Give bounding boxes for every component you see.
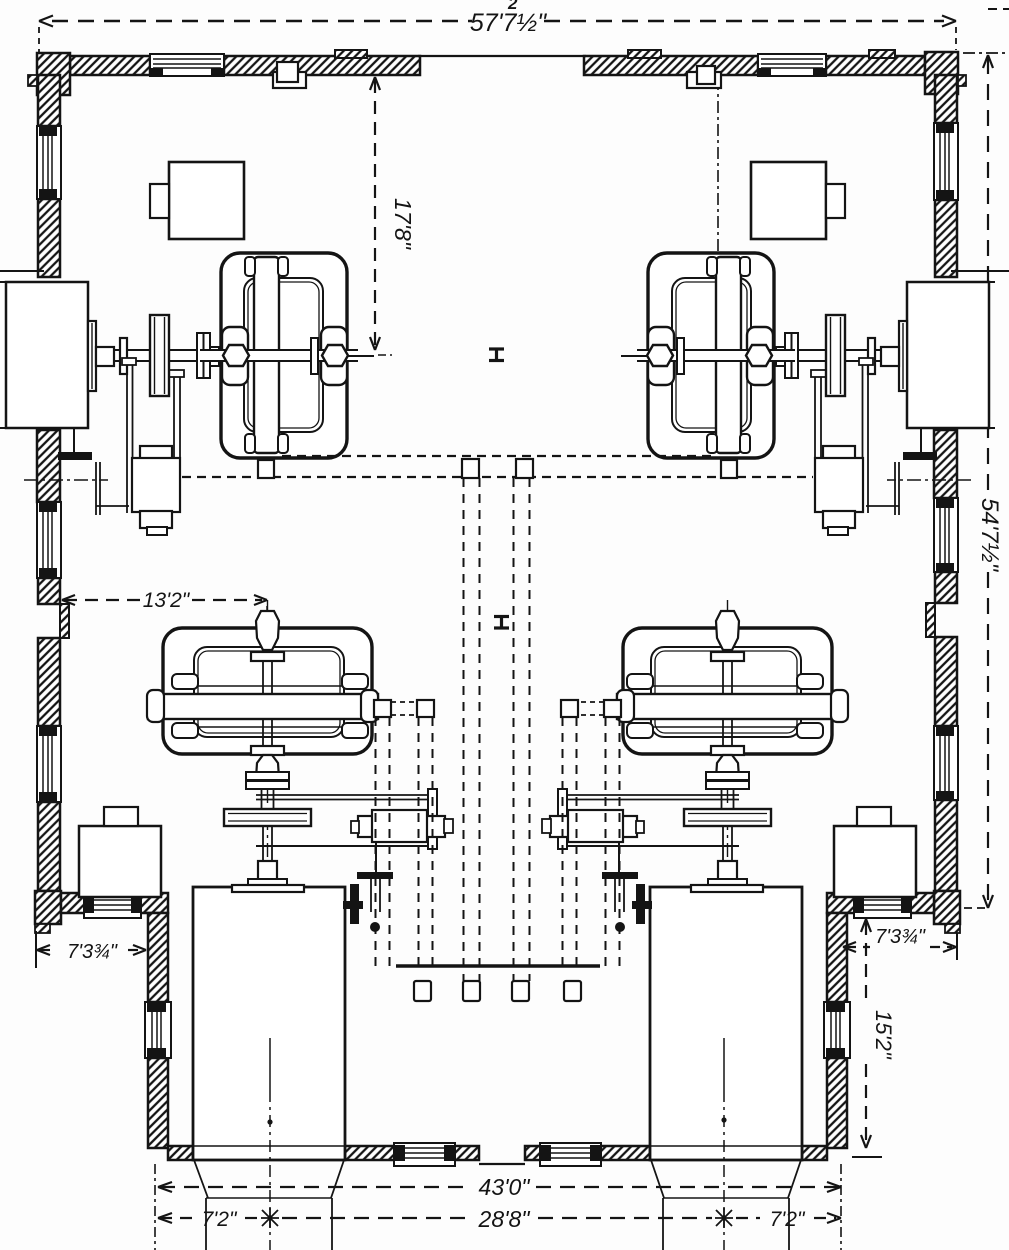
svg-text:43'0": 43'0" (479, 1174, 532, 1200)
svg-text:7'3¾": 7'3¾" (67, 941, 118, 963)
svg-text:7'2": 7'2" (202, 1208, 238, 1231)
svg-text:54'7½": 54'7½" (976, 498, 1003, 573)
svg-text:13'2": 13'2" (143, 589, 191, 612)
svg-text:28'8": 28'8" (478, 1206, 532, 1232)
svg-text:57'7½": 57'7½" (470, 9, 547, 37)
svg-text:7'2": 7'2" (770, 1208, 806, 1231)
svg-text:7'3¾": 7'3¾" (875, 926, 926, 948)
svg-text:17'8": 17'8" (390, 198, 416, 251)
svg-text:15'2": 15'2" (871, 1010, 896, 1060)
